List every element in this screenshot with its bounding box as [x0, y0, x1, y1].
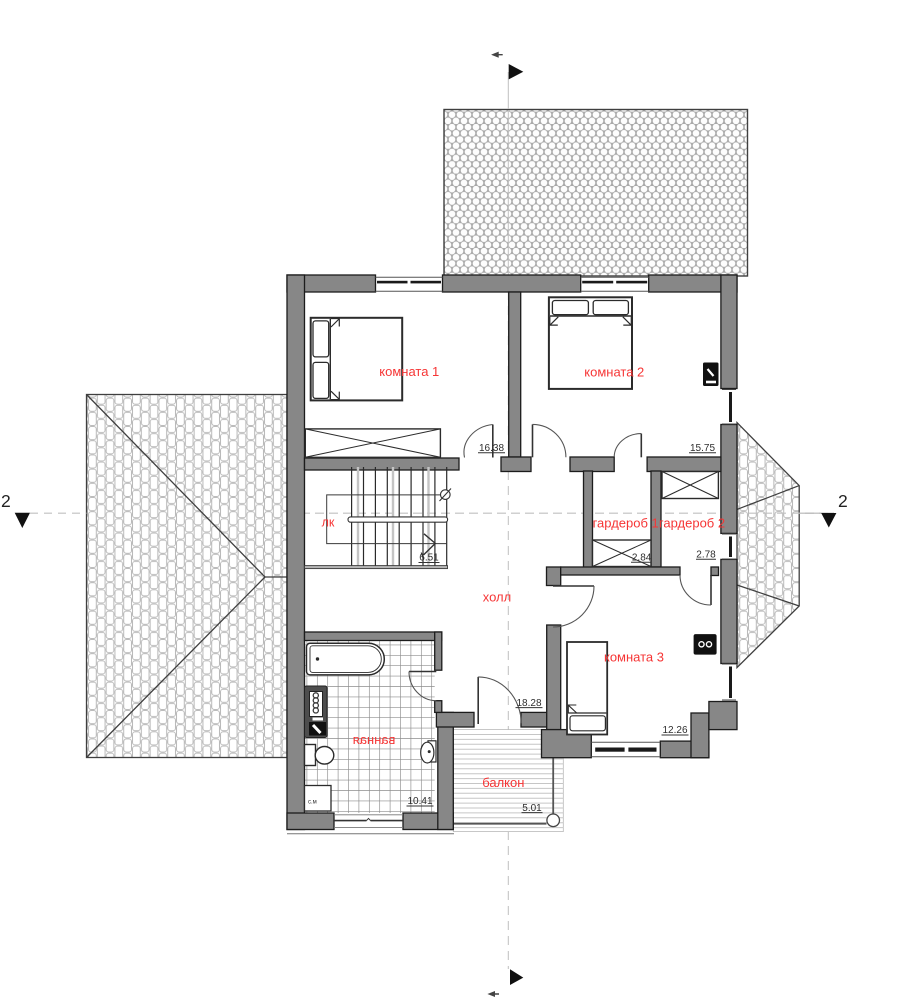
svg-text:холл: холл [483, 590, 511, 605]
svg-text:комната 2: комната 2 [584, 365, 644, 380]
svg-text:2: 2 [838, 491, 848, 511]
svg-text:комната 1: комната 1 [379, 364, 439, 379]
svg-text:лк: лк [322, 516, 335, 530]
svg-text:с.м: с.м [308, 800, 317, 806]
svg-text:2: 2 [1, 491, 11, 511]
svg-text:гардероб 2: гардероб 2 [659, 516, 725, 531]
svg-text:балкон: балкон [482, 775, 524, 790]
svg-text:ванная: ванная [353, 732, 396, 747]
svg-text:комната 3: комната 3 [604, 650, 664, 665]
svg-text:гардероб 1: гардероб 1 [593, 516, 659, 531]
